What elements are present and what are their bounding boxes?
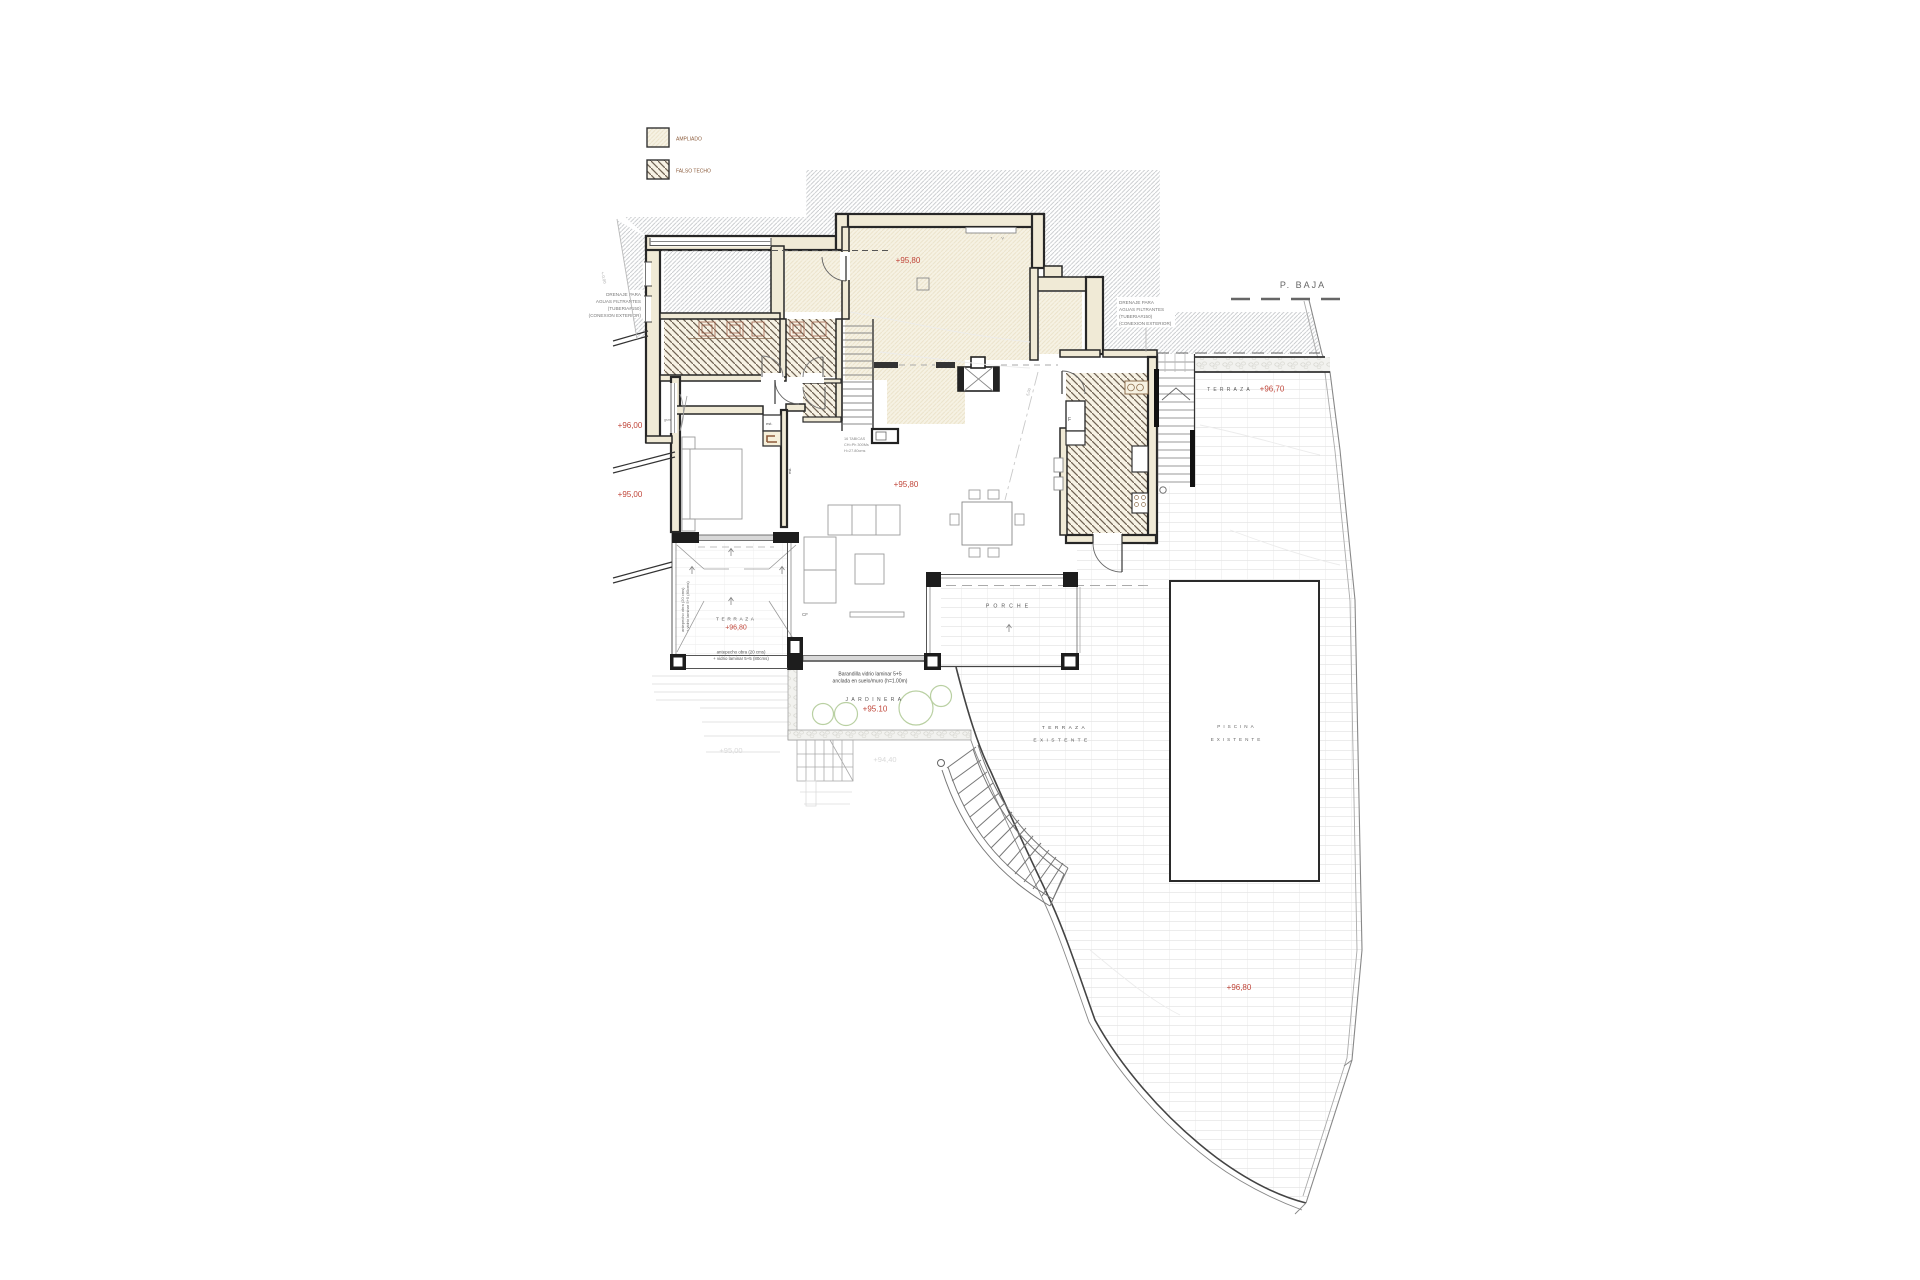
svg-text:H=27.80cms: H=27.80cms [844, 449, 866, 453]
svg-text:+ vidrio laminar 5+5 (80cms): + vidrio laminar 5+5 (80cms) [685, 581, 690, 632]
svg-text:+94,40: +94,40 [873, 755, 896, 764]
svg-text:AGUAS FILTRANTES: AGUAS FILTRANTES [596, 299, 641, 304]
svg-text:+95.10: +95.10 [863, 705, 888, 714]
svg-text:EXISTENTE: EXISTENTE [1211, 737, 1264, 742]
svg-text:est.: est. [766, 421, 772, 426]
svg-text:+96,80: +96,80 [1227, 983, 1252, 992]
svg-text:PISCINA: PISCINA [1217, 724, 1256, 729]
svg-text:Barandilla vidrio laminar 5+5: Barandilla vidrio laminar 5+5 [838, 672, 901, 678]
svg-text:TERRAZA: TERRAZA [716, 617, 757, 623]
svg-text:PORCHE: PORCHE [986, 604, 1032, 610]
svg-text:EXISTENTE: EXISTENTE [1033, 738, 1090, 744]
svg-text:AGUAS FILTRANTES: AGUAS FILTRANTES [1119, 307, 1164, 312]
svg-text:+95,00: +95,00 [719, 746, 742, 755]
svg-text:FALSO TECHO: FALSO TECHO [676, 169, 711, 175]
svg-text:CH=Ph 300Ms: CH=Ph 300Ms [844, 443, 869, 447]
svg-text:antepecho obra (20 cms): antepecho obra (20 cms) [717, 650, 766, 655]
svg-text:AMPLIADO: AMPLIADO [676, 137, 702, 143]
svg-text:DRENAJE PARA: DRENAJE PARA [606, 292, 642, 297]
svg-text:P. BAJA: P. BAJA [1280, 280, 1326, 290]
svg-text:anclada en suelo/muro (h=1.00m: anclada en suelo/muro (h=1.00m) [833, 679, 908, 685]
svg-text:TERRAZA: TERRAZA [1207, 387, 1253, 393]
svg-text:(CONEXION EXTERIOR): (CONEXION EXTERIOR) [1119, 321, 1172, 326]
svg-text:+95,80: +95,80 [894, 480, 919, 489]
svg-text:(TUBERIA#150): (TUBERIA#150) [608, 306, 642, 311]
svg-text:16 TABICAS: 16 TABICAS [844, 437, 866, 441]
svg-text:+96,70: +96,70 [1260, 385, 1285, 394]
svg-text:CF: CF [802, 612, 808, 617]
svg-text:+96,80: +96,80 [725, 625, 747, 632]
svg-text:(TUBERIA#150): (TUBERIA#150) [1119, 314, 1153, 319]
svg-text:+95,80: +95,80 [896, 256, 921, 265]
svg-text:gsm.: gsm. [664, 418, 672, 422]
svg-text:TERRAZA: TERRAZA [1042, 725, 1088, 731]
svg-text:+95,00: +95,00 [618, 490, 643, 499]
svg-text:F: F [1068, 417, 1071, 423]
svg-text:DRENAJE PARA: DRENAJE PARA [1119, 300, 1155, 305]
svg-text:JARDINERA: JARDINERA [846, 697, 905, 703]
svg-text:T . V: T . V [990, 237, 1005, 241]
svg-text:est.: est. [787, 468, 792, 474]
svg-text:+96,00: +96,00 [618, 421, 643, 430]
svg-text:+ vidrio laminar 5+5 (80cms): + vidrio laminar 5+5 (80cms) [713, 656, 769, 661]
